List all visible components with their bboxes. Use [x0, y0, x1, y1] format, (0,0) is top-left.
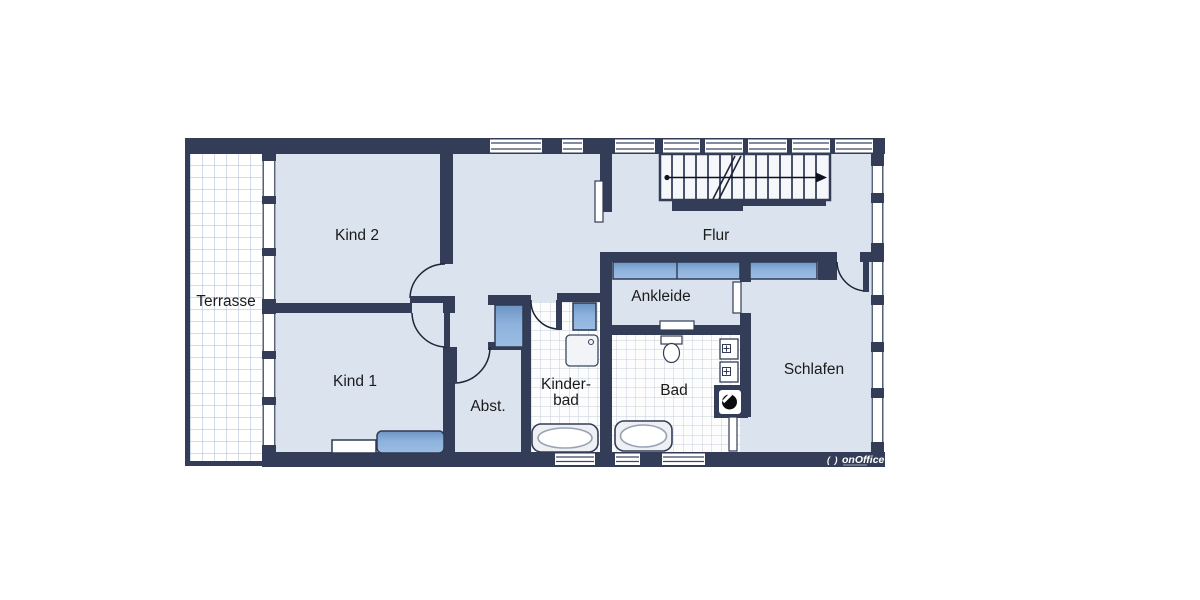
door-leaf-flur	[595, 181, 603, 222]
door-leaf-kinderbad	[556, 300, 562, 330]
bottom-windows	[555, 454, 705, 466]
window	[615, 454, 640, 466]
door-leaf-ankleide	[733, 282, 741, 313]
window	[792, 140, 830, 153]
left-window-wall	[262, 154, 276, 452]
bathtub-bad	[615, 421, 672, 451]
wardrobe-ankleide	[613, 262, 740, 279]
label-kind2: Kind 2	[335, 227, 379, 244]
label-abstellraum: Abst.	[470, 398, 505, 415]
door-leaf-schlafen	[863, 262, 869, 292]
washbasin	[720, 362, 738, 382]
vendor-logo-text: onOffice	[842, 454, 885, 466]
label-flur: Flur	[703, 227, 730, 244]
bathtub-kinderbad	[532, 424, 598, 452]
label-kinderbad-line1: Kinder-	[541, 376, 591, 393]
staircase	[660, 154, 830, 211]
right-window-wall	[871, 154, 884, 452]
label-kinderbad-line2: bad	[553, 392, 579, 409]
window	[705, 140, 743, 153]
door-leaf-abstellraum	[451, 347, 457, 383]
hall-cabinet	[495, 305, 523, 347]
installation-shaft	[714, 385, 748, 418]
floor-plan: Terrasse Kind 2 Kind 1 Flur Ankleide Abs…	[0, 0, 1200, 600]
door-leaf-bad	[729, 417, 737, 451]
window	[662, 454, 705, 466]
vendor-logo-tagline	[843, 465, 867, 466]
window	[748, 140, 787, 153]
label-terrasse: Terrasse	[196, 293, 255, 310]
stair-landing-edge	[672, 200, 743, 211]
window	[562, 140, 583, 153]
shower-tray	[566, 335, 598, 366]
door-leaf-kind1	[444, 313, 450, 347]
kinderbad-cabinet	[573, 303, 596, 330]
stair-landing-edge	[743, 200, 826, 206]
bathroom-shelf	[660, 321, 694, 330]
wardrobe-schlafen	[750, 262, 817, 279]
washbasin	[720, 339, 738, 359]
window	[490, 140, 542, 153]
window	[835, 140, 873, 153]
door-leaf-kind2	[410, 296, 445, 303]
label-bad: Bad	[660, 382, 688, 399]
window	[663, 140, 700, 153]
window	[555, 454, 595, 466]
vendor-logo: ( ) onOffice	[827, 454, 885, 466]
label-kind1: Kind 1	[333, 373, 377, 390]
label-ankleide: Ankleide	[631, 288, 690, 305]
window	[615, 140, 655, 153]
label-schlafen: Schlafen	[784, 361, 844, 378]
vendor-logo-mark-icon: ( )	[827, 455, 839, 465]
